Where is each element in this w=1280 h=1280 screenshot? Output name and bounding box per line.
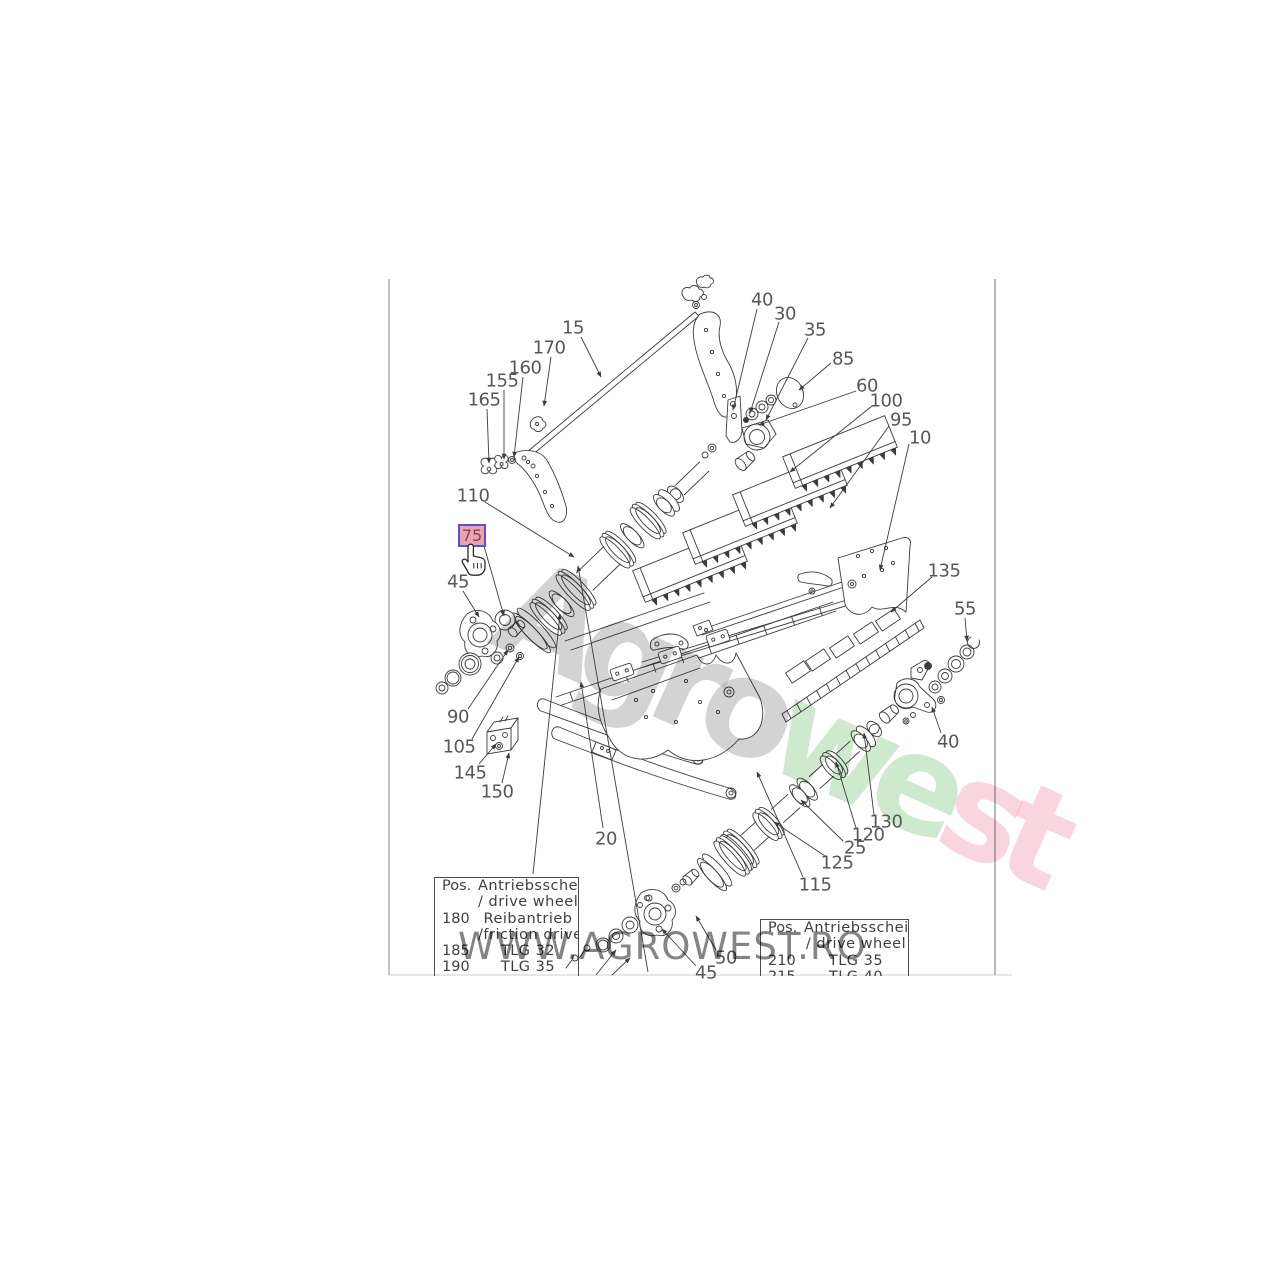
part-label-40[interactable]: 40	[751, 290, 773, 311]
part-label-150[interactable]: 150	[481, 782, 514, 803]
part-label-170[interactable]: 170	[533, 338, 566, 359]
table-cell-pos: 215	[761, 969, 804, 976]
part-label-155[interactable]: 155	[486, 371, 519, 392]
part-label-125[interactable]: 125	[821, 853, 854, 874]
table-row: / drive wheel	[761, 936, 908, 952]
table-row: 185TLG 32	[435, 943, 578, 959]
table-row: Pos.Antriebsscheibe	[435, 878, 578, 894]
table-row: 190TLG 35	[435, 959, 578, 975]
leader-line	[502, 753, 509, 783]
part-label-35[interactable]: 35	[804, 320, 826, 341]
leader-line	[581, 337, 601, 377]
leader-line	[544, 357, 551, 406]
table-cell-desc: /friction drive	[478, 927, 579, 943]
table-row: 210TLG 35	[761, 953, 908, 969]
table-cell-pos	[435, 894, 478, 910]
table-cell-desc: Reibantrieb	[478, 911, 578, 927]
bottom-bearing-cluster	[566, 867, 701, 968]
part-label-115[interactable]: 115	[799, 875, 832, 896]
watermark-diagonal: Agrowest	[473, 528, 1098, 921]
part-label-165[interactable]: 165	[468, 390, 501, 411]
part-label-55[interactable]: 55	[954, 599, 976, 620]
part-label-10[interactable]: 10	[909, 428, 931, 449]
support-tube	[521, 312, 699, 461]
part-label-40[interactable]: 40	[937, 732, 959, 753]
part-label-145[interactable]: 145	[454, 763, 487, 784]
part-label-15[interactable]: 15	[562, 318, 584, 339]
part-label-85[interactable]: 85	[832, 349, 854, 370]
left-bracket-arm	[481, 417, 567, 523]
leader-line	[774, 822, 825, 856]
right-bracket-arm	[682, 275, 737, 417]
table-cell-desc: TLG 40	[804, 969, 908, 976]
leader-line	[696, 916, 716, 950]
leader-line	[965, 618, 967, 641]
parts-catalog-page: Agrowest 1517016015516540303585601009510…	[0, 0, 1280, 1280]
part-label-100[interactable]: 100	[870, 391, 903, 412]
table-row: 215TLG 40	[761, 969, 908, 976]
table-row: /friction drive	[435, 927, 578, 943]
part-label-110[interactable]: 110	[457, 486, 490, 507]
table-cell-pos: 190	[435, 959, 478, 975]
table-cell-pos	[761, 936, 804, 952]
leader-line	[596, 950, 616, 975]
table-cell-pos: 185	[435, 943, 478, 959]
table-cell-pos	[435, 927, 478, 943]
part-label-30[interactable]: 30	[774, 304, 796, 325]
table-row: / drive wheel	[435, 894, 578, 910]
part-label-45[interactable]: 45	[695, 963, 717, 984]
part-label-105[interactable]: 105	[443, 737, 476, 758]
part-label-20[interactable]: 20	[595, 829, 617, 850]
exploded-parts-diagram: Agrowest 1517016015516540303585601009510…	[0, 0, 1280, 1280]
table-cell-desc: TLG 35	[804, 953, 908, 969]
leader-line	[487, 409, 489, 463]
part-label-90[interactable]: 90	[447, 707, 469, 728]
leader-line	[612, 958, 630, 975]
table-row: Pos.Antriebsscheibe	[761, 920, 908, 936]
table-cell-desc: TLG 35	[478, 959, 578, 975]
table-cell-desc: / drive wheel	[478, 894, 578, 910]
table-cell-desc: TLG 32	[478, 943, 578, 959]
table-cell-desc: / drive wheel	[804, 936, 908, 952]
leader-line	[733, 309, 757, 410]
table-cell-pos: Pos.	[435, 878, 478, 894]
table-row: 180Reibantrieb	[435, 911, 578, 927]
table-cell-desc: Antriebsscheibe	[478, 878, 579, 894]
parts-table-left: Pos.Antriebsscheibe/ drive wheel180Reiba…	[434, 877, 579, 976]
table-cell-desc: Antriebsscheibe	[804, 920, 909, 936]
hand-cursor-icon	[457, 541, 491, 581]
table-cell-pos: 210	[761, 953, 804, 969]
table-cell-pos: Pos.	[761, 920, 804, 936]
gear-block	[487, 716, 518, 754]
leader-line	[799, 363, 831, 390]
parts-table-right: Pos.Antriebsscheibe/ drive wheel210TLG 3…	[760, 919, 909, 976]
table-cell-pos: 180	[435, 911, 478, 927]
leader-line	[750, 322, 779, 413]
part-label-135[interactable]: 135	[928, 561, 961, 582]
leader-line	[662, 929, 696, 966]
part-label-50[interactable]: 50	[715, 948, 737, 969]
